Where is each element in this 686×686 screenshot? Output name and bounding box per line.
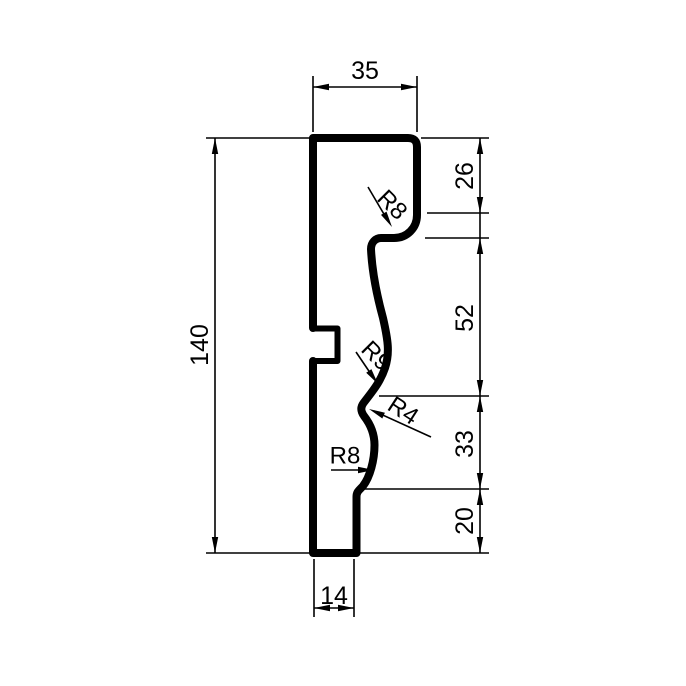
technical-drawing-page: 35 140 26 52 33 20: [0, 0, 686, 686]
radius-label-r4: R4: [383, 391, 423, 430]
arrowhead-20-down: [477, 537, 483, 553]
arrowhead-33-up: [477, 396, 483, 412]
radius-callout-r4: R4: [369, 391, 431, 437]
radius-callout-r8-top: R8: [368, 185, 412, 227]
arrowhead-52-up: [477, 238, 483, 254]
dim-label-upper-right: 26: [451, 162, 479, 190]
extension-lines: [206, 76, 489, 617]
dim-label-bottom-width: 14: [320, 582, 348, 610]
dim-bottom-width: 14: [314, 582, 354, 611]
arrowhead-left: [313, 84, 329, 90]
dim-label-middle-right: 52: [451, 304, 479, 332]
arrowhead-33-down: [477, 473, 483, 489]
arrowhead-26-down: [477, 197, 483, 213]
dim-label-top-width: 35: [351, 57, 379, 85]
dim-top-width: 35: [313, 57, 417, 90]
dim-label-total-height: 140: [186, 324, 214, 366]
arrowhead-52-down: [477, 380, 483, 396]
arrowhead-up: [212, 138, 218, 154]
arrowhead-26-up: [477, 138, 483, 154]
molding-profile-drawing: 35 140 26 52 33 20: [0, 0, 686, 686]
arrowhead-right: [401, 84, 417, 90]
back-groove-notch: [313, 329, 338, 362]
arrowhead-20-up: [477, 489, 483, 505]
dim-right-chain: 26 52 33 20: [451, 138, 483, 553]
dim-label-lower-right: 33: [451, 430, 479, 458]
dim-label-bottom-right: 20: [451, 507, 479, 535]
radius-label-r8-top: R8: [372, 185, 413, 226]
dim-total-height: 140: [186, 138, 218, 553]
arrowhead-down: [212, 537, 218, 553]
radius-label-r8-bottom: R8: [330, 443, 361, 470]
